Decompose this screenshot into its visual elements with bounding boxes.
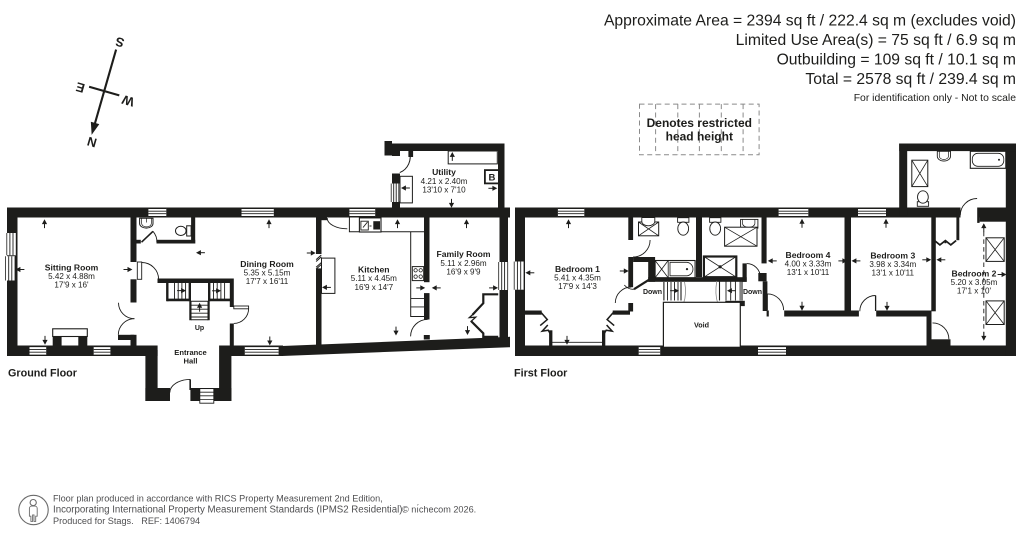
svg-text:Hall: Hall: [184, 357, 198, 366]
svg-text:Floor plan produced in accorda: Floor plan produced in accordance with R…: [53, 494, 383, 504]
svg-text:Total = 2578 sq ft / 239.4 sq: Total = 2578 sq ft / 239.4 sq m: [805, 71, 1016, 88]
svg-text:Family Room: Family Room: [437, 249, 491, 259]
svg-text:Outbuilding = 109 sq ft / 10.1: Outbuilding = 109 sq ft / 10.1 sq m: [777, 52, 1016, 69]
svg-text:16'9 x 9'9: 16'9 x 9'9: [446, 267, 481, 276]
svg-text:Bedroom 1: Bedroom 1: [555, 264, 600, 274]
svg-text:13'1 x 10'11: 13'1 x 10'11: [787, 268, 830, 277]
svg-text:13'10 x 7'10: 13'10 x 7'10: [422, 185, 466, 194]
svg-text:First Floor: First Floor: [514, 368, 568, 380]
svg-text:Dining Room: Dining Room: [240, 259, 294, 269]
svg-text:B: B: [488, 172, 495, 183]
svg-text:Ground Floor: Ground Floor: [8, 368, 78, 380]
svg-text:head height: head height: [666, 129, 733, 143]
svg-text:Bedroom 4: Bedroom 4: [786, 250, 831, 260]
svg-text:17'9 x 16': 17'9 x 16': [54, 281, 89, 290]
svg-text:Limited Use Area(s) = 75 sq ft: Limited Use Area(s) = 75 sq ft / 6.9 sq …: [736, 32, 1016, 49]
svg-text:Incorporating International Pr: Incorporating International Property Mea…: [53, 505, 405, 516]
svg-text:Down: Down: [743, 289, 762, 296]
svg-text:17'9 x 14'3: 17'9 x 14'3: [558, 282, 597, 291]
svg-text:For identification only - Not: For identification only - Not to scale: [854, 93, 1017, 104]
svg-text:Sitting Room: Sitting Room: [45, 263, 99, 273]
svg-text:Up: Up: [195, 325, 204, 332]
svg-text:16'9 x 14'7: 16'9 x 14'7: [354, 283, 393, 292]
svg-text:Entrance: Entrance: [174, 348, 207, 357]
svg-text:Denotes restricted: Denotes restricted: [647, 116, 752, 130]
svg-text:17'7 x 16'11: 17'7 x 16'11: [246, 277, 289, 286]
svg-text:© nı́checom 2026.: © nı́checom 2026.: [402, 504, 476, 515]
svg-text:13'1 x 10'11: 13'1 x 10'11: [872, 269, 915, 278]
svg-text:Down: Down: [643, 289, 662, 296]
svg-text:Utility: Utility: [432, 167, 456, 177]
svg-text:Bedroom 3: Bedroom 3: [870, 251, 915, 261]
svg-text:Void: Void: [694, 320, 709, 329]
svg-text:Bedroom 2: Bedroom 2: [952, 269, 997, 279]
svg-text:Approximate Area = 2394 sq ft: Approximate Area = 2394 sq ft / 222.4 sq…: [604, 13, 1016, 30]
svg-text:Kitchen: Kitchen: [358, 265, 390, 275]
svg-text:Produced for Stags. REF: 140: Produced for Stags. REF: 1406794: [53, 516, 200, 526]
svg-text:17'1 x 10': 17'1 x 10': [957, 287, 992, 296]
